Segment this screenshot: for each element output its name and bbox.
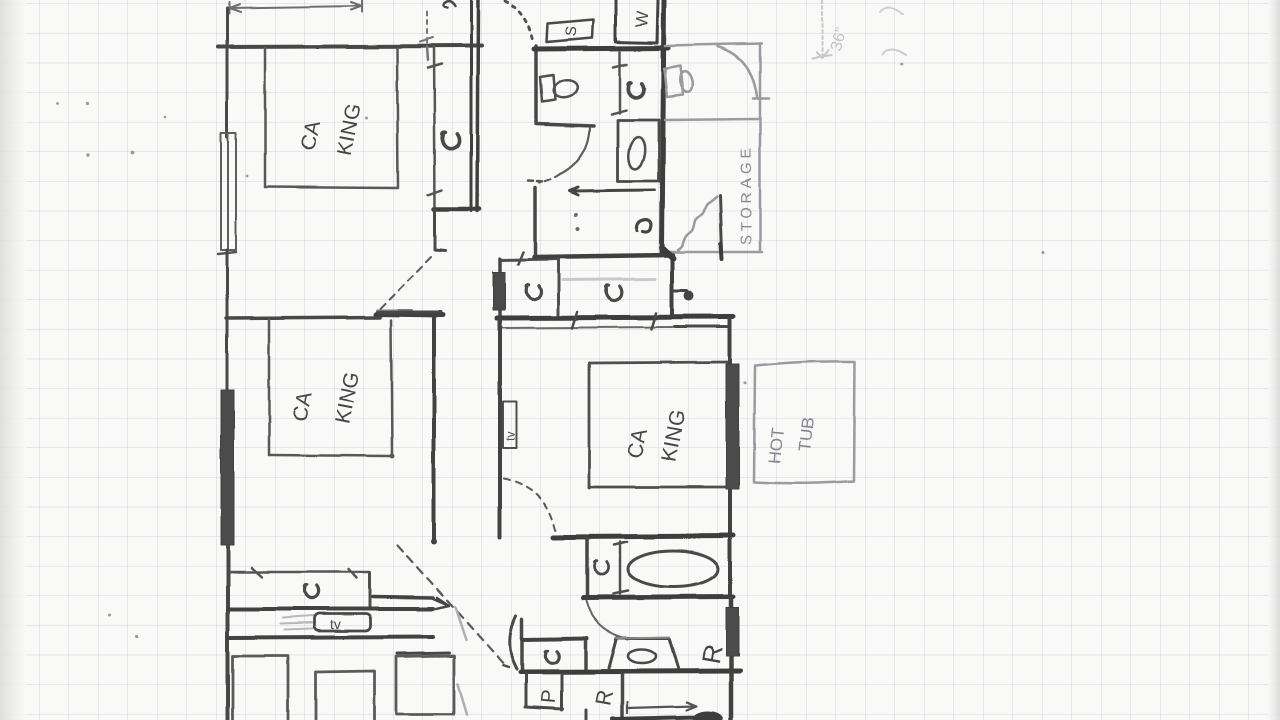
svg-text:W: W [632,11,652,29]
svg-text:tv: tv [330,616,341,632]
svg-text:TUB: TUB [795,417,817,453]
svg-text:STORAGE: STORAGE [738,149,755,245]
svg-text:tv: tv [503,431,517,441]
svg-text:S: S [563,26,581,37]
svg-text:P: P [538,689,561,704]
svg-text:HOT: HOT [765,427,788,465]
